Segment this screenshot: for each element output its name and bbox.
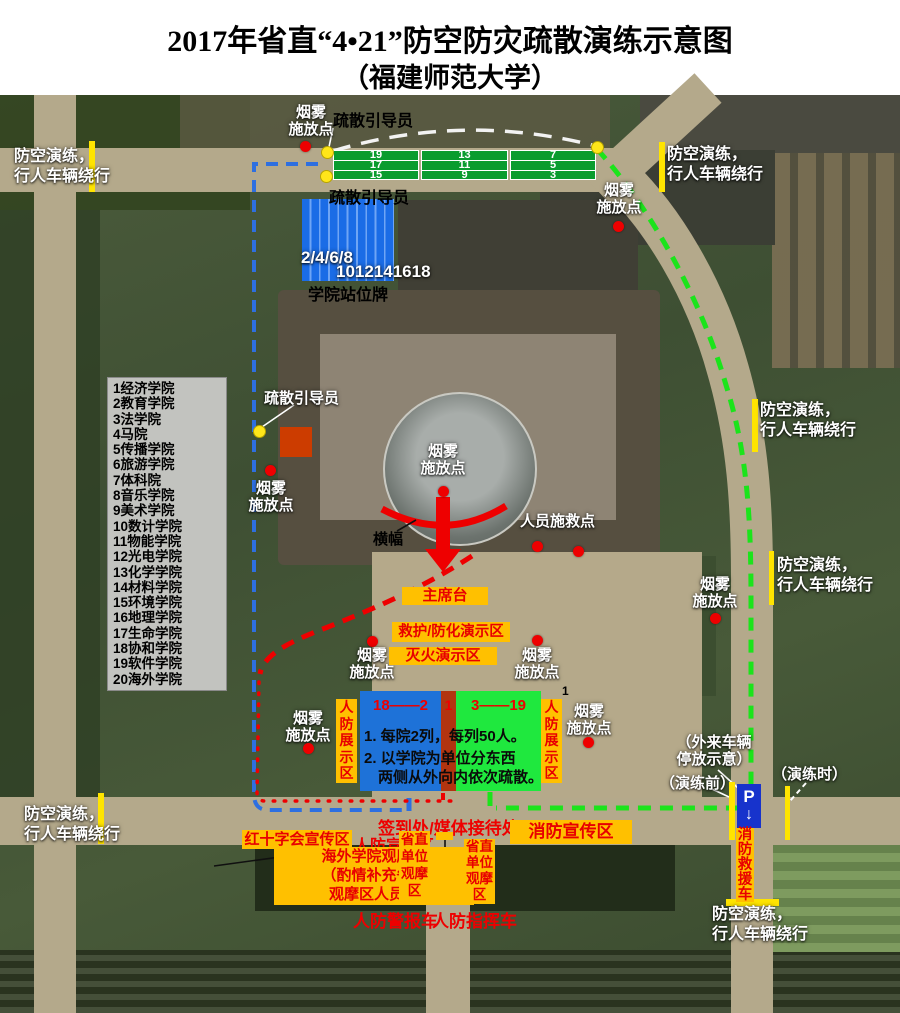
detour-line2: 行人车辆绕行	[14, 168, 110, 185]
formation-note: 1. 每院2列，每列50人。	[364, 725, 526, 746]
check-in-marker	[436, 832, 453, 840]
road-closure-bar	[659, 142, 665, 192]
smoke-line1: 烟雾	[700, 576, 730, 593]
banner-label: 横幅	[373, 528, 403, 549]
smoke-line1: 烟雾	[256, 480, 286, 497]
assembly-bar-group: 19 17 15	[333, 150, 419, 180]
road-closure-bar	[752, 399, 758, 452]
college-item: 19软件学院	[113, 656, 221, 671]
fire-pub-zone-label: 消防宣传区	[510, 820, 632, 844]
smoke-line2: 施放点	[285, 727, 330, 744]
college-item: 12光电学院	[113, 549, 221, 564]
assembly-bar-group: 13 11 9	[421, 150, 508, 180]
detour-line2: 行人车辆绕行	[667, 166, 763, 183]
college-item: 17生命学院	[113, 626, 221, 641]
guide-label: 疏散引导员	[329, 184, 409, 208]
detour-line1: 防空演练，	[777, 557, 857, 574]
smoke-line1: 烟雾	[357, 647, 387, 664]
assembly-number: 9	[422, 171, 507, 180]
guide-label: 疏散引导员	[333, 107, 413, 131]
college-item: 15环境学院	[113, 595, 221, 610]
smoke-line2: 施放点	[514, 664, 559, 681]
parking-letter: P	[737, 787, 761, 807]
smoke-line1: 烟雾	[574, 703, 604, 720]
detour-label: 防空演练， 行人车辆绕行	[760, 401, 856, 441]
smoke-line2: 施放点	[288, 121, 333, 138]
smoke-line1: 烟雾	[428, 443, 458, 460]
smoke-line2: 施放点	[349, 664, 394, 681]
rescue-point-label: 人员施救点	[520, 510, 595, 531]
alarm-vehicle-label: 人防警报车	[353, 907, 438, 932]
rescue-dot	[532, 541, 543, 552]
smoke-point-label: 烟雾施放点	[588, 182, 650, 216]
smoke-line1: 烟雾	[522, 647, 552, 664]
provincial-stand-box: 省直单位观摩区	[464, 839, 495, 904]
college-legend: 1经济学院 2教育学院 3法学院 4马院 5传播学院 6旅游学院 7体科院 8音…	[107, 377, 227, 691]
corner-marker: 1	[562, 684, 569, 698]
command-vehicle-label: 人防指挥车	[432, 907, 517, 932]
formation-east-range: 3——19	[456, 697, 541, 714]
smoke-line1: 烟雾	[604, 182, 634, 199]
detour-label: 防空演练， 行人车辆绕行	[24, 805, 120, 845]
detour-line1: 防空演练，	[760, 402, 840, 419]
detour-label: 防空演练， 行人车辆绕行	[777, 556, 873, 596]
road-west	[34, 95, 76, 1013]
detour-line2: 行人车辆绕行	[24, 826, 120, 843]
smoke-line2: 施放点	[692, 593, 737, 610]
smoke-point-label: 烟雾施放点	[277, 710, 339, 744]
page-subtitle: （福建师范大学）	[0, 56, 900, 95]
detour-line1: 防空演练，	[24, 806, 104, 823]
smoke-dot	[300, 141, 311, 152]
smoke-dot	[532, 635, 543, 646]
college-item: 9美术学院	[113, 503, 221, 518]
detour-label: 防空演练， 行人车辆绕行	[667, 145, 763, 185]
detour-line2: 行人车辆绕行	[777, 577, 873, 594]
assembly-bar-group: 7 5 3	[510, 150, 596, 180]
college-item: 20海外学院	[113, 672, 221, 687]
aid-demo-label: 救护/防化演示区	[392, 622, 510, 642]
formation-center-number: 1	[441, 697, 456, 713]
college-item: 8音乐学院	[113, 488, 221, 503]
smoke-line2: 施放点	[420, 460, 465, 477]
detour-line1: 防空演练，	[14, 148, 94, 165]
podium-label: 主席台	[402, 587, 488, 605]
college-item: 10数计学院	[113, 519, 221, 534]
guide-dot	[253, 425, 266, 438]
detour-line2: 行人车辆绕行	[760, 422, 856, 439]
college-item: 2教育学院	[113, 396, 221, 411]
overseas-stand-box: 海外学院观摩区 （酌情补充省直 观摩区人员）	[274, 847, 474, 905]
college-item: 11物能学院	[113, 534, 221, 549]
parking-note: （外来车辆 停放示意）	[664, 734, 764, 768]
guide-label: 疏散引导员	[264, 387, 339, 408]
formation-note: 两侧从外向内依次疏散。	[378, 766, 543, 787]
before-drill-label: （演练前）	[660, 772, 735, 793]
guide-dot	[320, 170, 333, 183]
display-zone-label: 人防展示区	[336, 699, 357, 783]
college-item: 18协和学院	[113, 641, 221, 656]
detour-label: 防空演练， 行人车辆绕行	[14, 147, 110, 187]
during-drill-label: （演练时）	[772, 763, 847, 784]
page-title: 2017年省直“4•21”防空防灾疏散演练示意图	[0, 16, 900, 60]
smoke-line2: 施放点	[596, 199, 641, 216]
college-item: 7体科院	[113, 473, 221, 488]
smoke-dot	[265, 465, 276, 476]
guide-dot	[591, 141, 604, 154]
fire-rescue-vehicle-label: 消防救援车	[736, 828, 754, 902]
college-item: 1经济学院	[113, 381, 221, 396]
detour-line1: 防空演练，	[667, 146, 747, 163]
building-block	[772, 153, 900, 368]
guide-dot	[321, 146, 334, 159]
smoke-line1: 烟雾	[293, 710, 323, 727]
college-item: 16地理学院	[113, 610, 221, 625]
college-item: 14材料学院	[113, 580, 221, 595]
drill-map: 2017年省直“4•21”防空防灾疏散演练示意图 （福建师范大学）	[0, 0, 900, 1013]
smoke-dot	[710, 613, 721, 624]
road-closure-bar	[769, 551, 774, 605]
parking-note-line1: （外来车辆	[676, 734, 751, 751]
smoke-point-label: 烟雾施放点	[280, 104, 342, 138]
command-post-square	[280, 427, 312, 457]
parking-note-line2: 停放示意）	[676, 751, 751, 768]
smoke-point-label: 烟雾施放点	[506, 647, 568, 681]
station-sign-back-numbers: 1012141618	[336, 262, 431, 282]
parking-sign: P ↓	[737, 784, 761, 828]
college-item: 3法学院	[113, 412, 221, 427]
detour-label: 防空演练， 行人车辆绕行	[712, 905, 808, 945]
smoke-dot	[303, 743, 314, 754]
smoke-point-label: 烟雾施放点	[558, 703, 620, 737]
smoke-line2: 施放点	[248, 497, 293, 514]
smoke-dot	[613, 221, 624, 232]
detour-line2: 行人车辆绕行	[712, 926, 808, 943]
smoke-line1: 烟雾	[296, 104, 326, 121]
college-item: 5传播学院	[113, 442, 221, 457]
smoke-dot	[367, 636, 378, 647]
formation-west-range: 18——2	[360, 697, 441, 714]
smoke-point-label: 烟雾施放点	[240, 480, 302, 514]
parking-arrow-icon: ↓	[737, 807, 761, 823]
detour-line1: 防空演练，	[712, 906, 792, 923]
smoke-point-label: 烟雾施放点	[684, 576, 746, 610]
road-closure-bar	[785, 786, 790, 840]
smoke-point-label: 烟雾施放点	[412, 443, 474, 477]
college-item: 13化学学院	[113, 565, 221, 580]
smoke-dot	[438, 486, 449, 497]
fire-demo-label: 灭火演示区	[389, 647, 497, 665]
college-item: 4马院	[113, 427, 221, 442]
college-item: 6旅游学院	[113, 457, 221, 472]
provincial-stand-box: 省直单位观摩区	[399, 831, 430, 904]
smoke-line2: 施放点	[566, 720, 611, 737]
station-sign-caption: 学院站位牌	[308, 281, 388, 305]
assembly-number: 15	[334, 171, 418, 180]
assembly-number: 3	[511, 171, 595, 180]
smoke-dot	[583, 737, 594, 748]
formation-note: 2. 以学院为单位分东西	[364, 747, 516, 768]
display-zone-label: 人防展示区	[541, 699, 562, 783]
rescue-dot	[573, 546, 584, 557]
